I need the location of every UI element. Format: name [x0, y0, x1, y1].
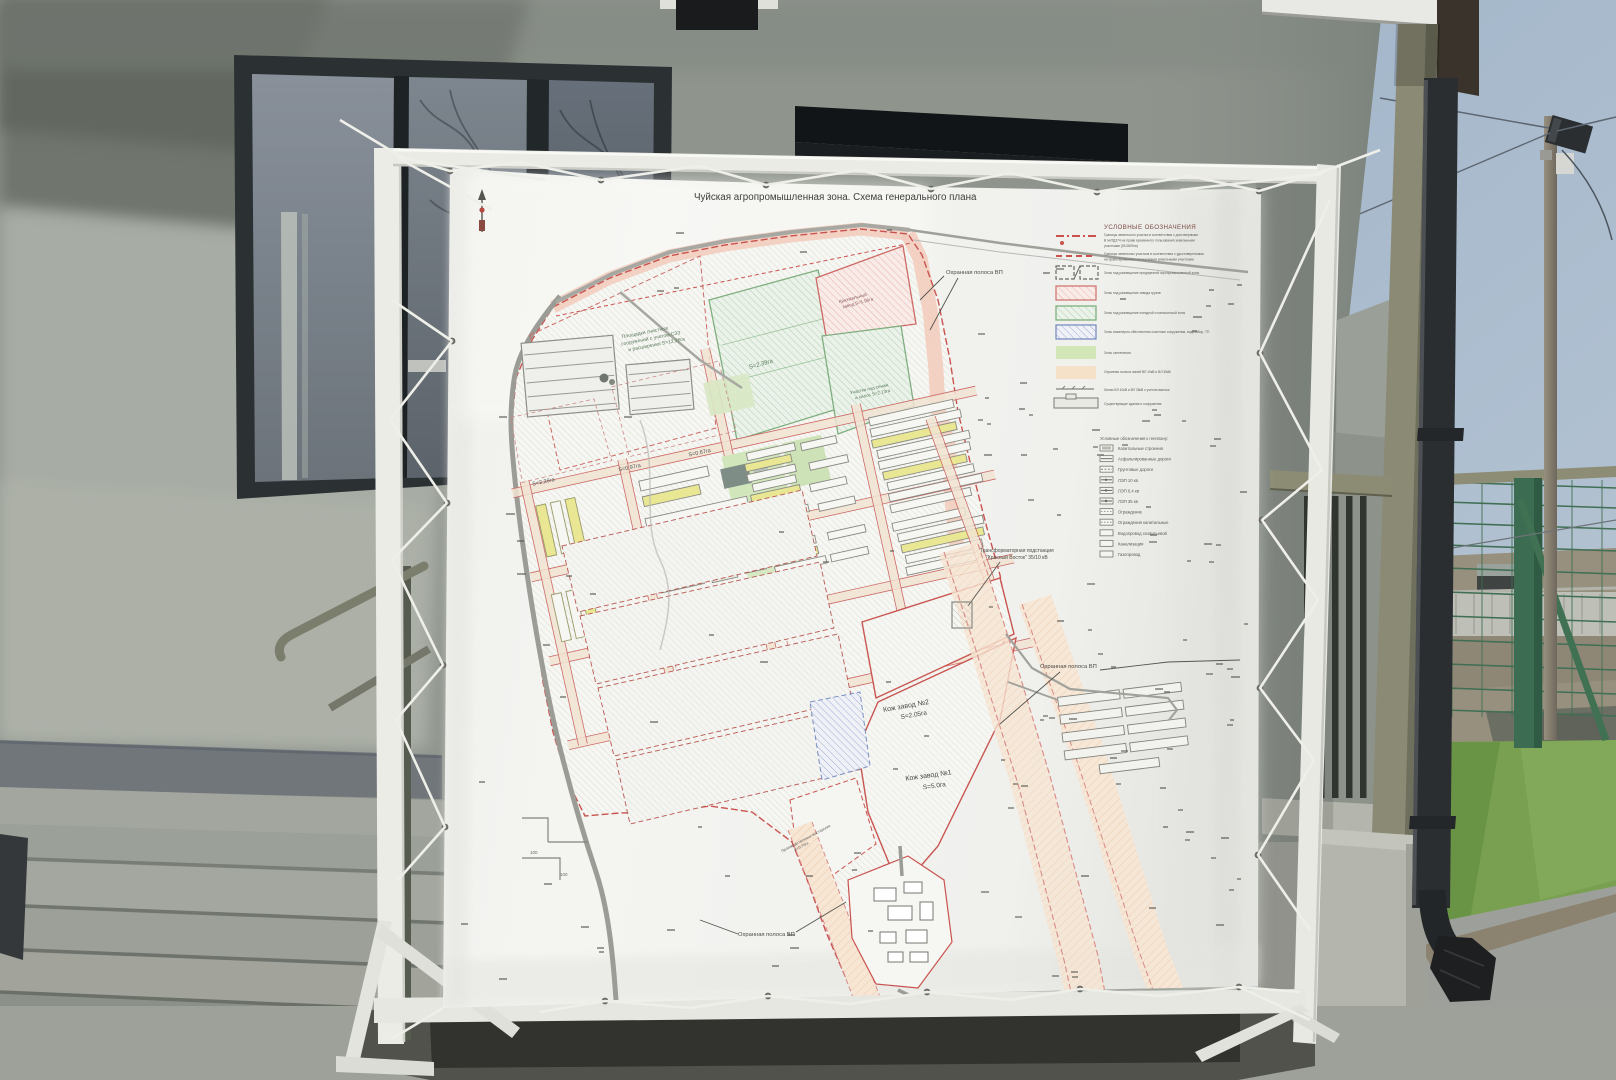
svg-text:Зоны под размещение предприяти: Зоны под размещение предприятий агропром…	[1104, 271, 1200, 275]
svg-text:Линии ВЛ 10кВ и ВЛ 35кВ с учет: Линии ВЛ 10кВ и ВЛ 35кВ с учетом выноса	[1104, 388, 1170, 392]
svg-text:ЛЭП 10 кв: ЛЭП 10 кв	[1118, 478, 1139, 483]
svg-text:Трансформаторная подстанция: Трансформаторная подстанция	[980, 548, 1054, 554]
svg-text:участками (53.0809га): участками (53.0809га)	[1104, 244, 1138, 248]
svg-text:В №ПД374 на праве временного п: В №ПД374 на праве временного пользования…	[1104, 239, 1195, 243]
svg-text:Асфальтированные дороги: Асфальтированные дороги	[1118, 457, 1171, 462]
svg-text:Существующие здания и сооружен: Существующие здания и сооружения	[1104, 402, 1162, 406]
svg-text:Грунтовые дороги: Грунтовые дороги	[1118, 467, 1154, 472]
svg-text:Зоны озеленения: Зоны озеленения	[1104, 351, 1131, 355]
svg-text:100: 100	[530, 850, 538, 855]
svg-text:Условные обозначения к генплан: Условные обозначения к генплану:	[1100, 436, 1168, 441]
svg-text:Границы земельного участка в с: Границы земельного участка в соответстви…	[1104, 233, 1198, 237]
svg-text:ЛЭП 0,4 кв: ЛЭП 0,4 кв	[1118, 488, 1140, 493]
svg-text:Капитальные строения: Капитальные строения	[1118, 446, 1163, 451]
svg-text:Охранная полоса линий ВЛ 10кВ: Охранная полоса линий ВЛ 10кВ и ВЛ 35кВ	[1104, 370, 1172, 374]
svg-text:Ограждение: Ограждение	[1118, 510, 1143, 515]
svg-text:на право временного пользовани: на право временного пользования земельны…	[1104, 258, 1194, 262]
svg-text:Водопровод хозпитьевой: Водопровод хозпитьевой	[1118, 531, 1168, 536]
svg-text:УСЛОВНЫЕ ОБОЗНАЧЕНИЯ: УСЛОВНЫЕ ОБОЗНАЧЕНИЯ	[1104, 224, 1196, 231]
svg-text:Зоны инженерно-обеспечения очи: Зоны инженерно-обеспечения очистные соор…	[1104, 330, 1210, 334]
svg-text:Охранная полоса ВП: Охранная полоса ВП	[946, 270, 1003, 276]
svg-text:Зоны под размещение завода гру: Зоны под размещение завода грузов	[1104, 291, 1161, 295]
svg-text:Границы земельных участков в с: Границы земельных участков в соответстви…	[1104, 252, 1204, 256]
svg-text:Газопровод: Газопровод	[1118, 552, 1141, 557]
svg-text:ЛЭП 35 кв: ЛЭП 35 кв	[1118, 499, 1139, 504]
svg-text:"Красный Восток" 35/10 кВ: "Красный Восток" 35/10 кВ	[986, 554, 1048, 561]
svg-text:Охранная полоса ВП: Охранная полоса ВП	[738, 932, 795, 938]
svg-text:100: 100	[560, 872, 568, 877]
svg-text:Охранная полоса ВП: Охранная полоса ВП	[1040, 664, 1097, 670]
svg-text:Канализация: Канализация	[1118, 541, 1143, 546]
svg-text:Ограждения капитальные: Ограждения капитальные	[1118, 520, 1169, 525]
svg-text:Чуйская агропромышленная зона.: Чуйская агропромышленная зона. Схема ген…	[694, 192, 977, 203]
svg-text:Зоны под размещение поездной и: Зоны под размещение поездной и пансионск…	[1104, 311, 1186, 315]
